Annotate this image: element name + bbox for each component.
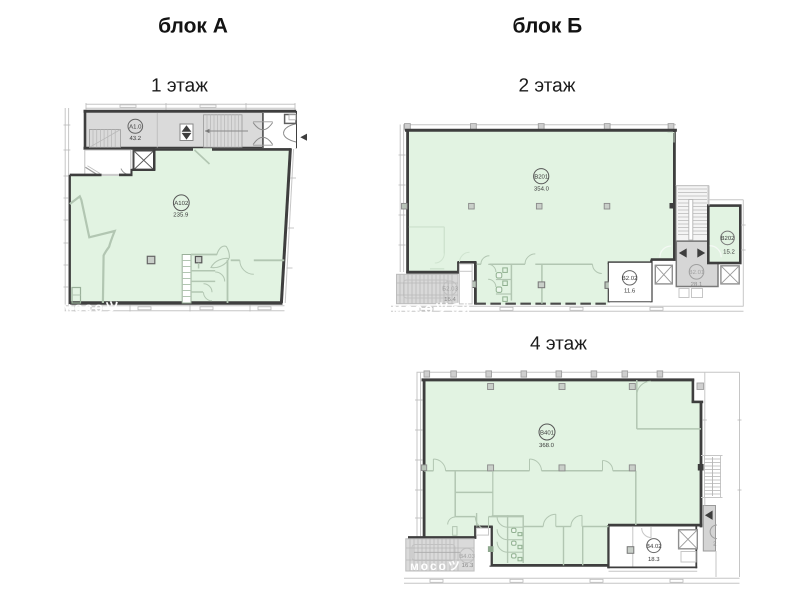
svg-text:1 этаж: 1 этаж	[151, 75, 208, 96]
svg-text:43.2: 43.2	[129, 135, 141, 142]
svg-text:354.0: 354.0	[534, 186, 550, 193]
svg-text:16.3: 16.3	[462, 562, 474, 569]
svg-text:Б2.03: Б2.03	[442, 285, 458, 292]
svg-text:28.1: 28.1	[691, 281, 703, 288]
svg-text:блок А: блок А	[158, 15, 228, 38]
svg-text:В2.02: В2.02	[622, 275, 638, 282]
svg-text:18.3: 18.3	[648, 556, 660, 563]
svg-text:4 этаж: 4 этаж	[530, 334, 587, 355]
svg-text:А1.0: А1.0	[129, 124, 142, 131]
svg-text:мосоツ: мосоツ	[410, 559, 462, 573]
svg-text:2 этаж: 2 этаж	[519, 75, 576, 96]
svg-text:15.2: 15.2	[723, 248, 735, 255]
svg-text:мосоツбӥ: мосоツбӥ	[392, 300, 472, 316]
svg-text:В4.02: В4.02	[646, 543, 662, 550]
svg-text:А102: А102	[174, 200, 189, 207]
svg-text:мосоツ: мосоツ	[62, 299, 121, 315]
svg-text:В202: В202	[720, 235, 735, 242]
svg-text:В201: В201	[534, 174, 549, 181]
svg-text:235.9: 235.9	[173, 212, 189, 219]
svg-text:блок Б: блок Б	[513, 15, 583, 38]
svg-text:В2.01: В2.01	[689, 269, 705, 276]
svg-text:В401: В401	[540, 429, 555, 436]
svg-text:368.0: 368.0	[539, 442, 555, 449]
svg-text:11.6: 11.6	[624, 288, 636, 295]
